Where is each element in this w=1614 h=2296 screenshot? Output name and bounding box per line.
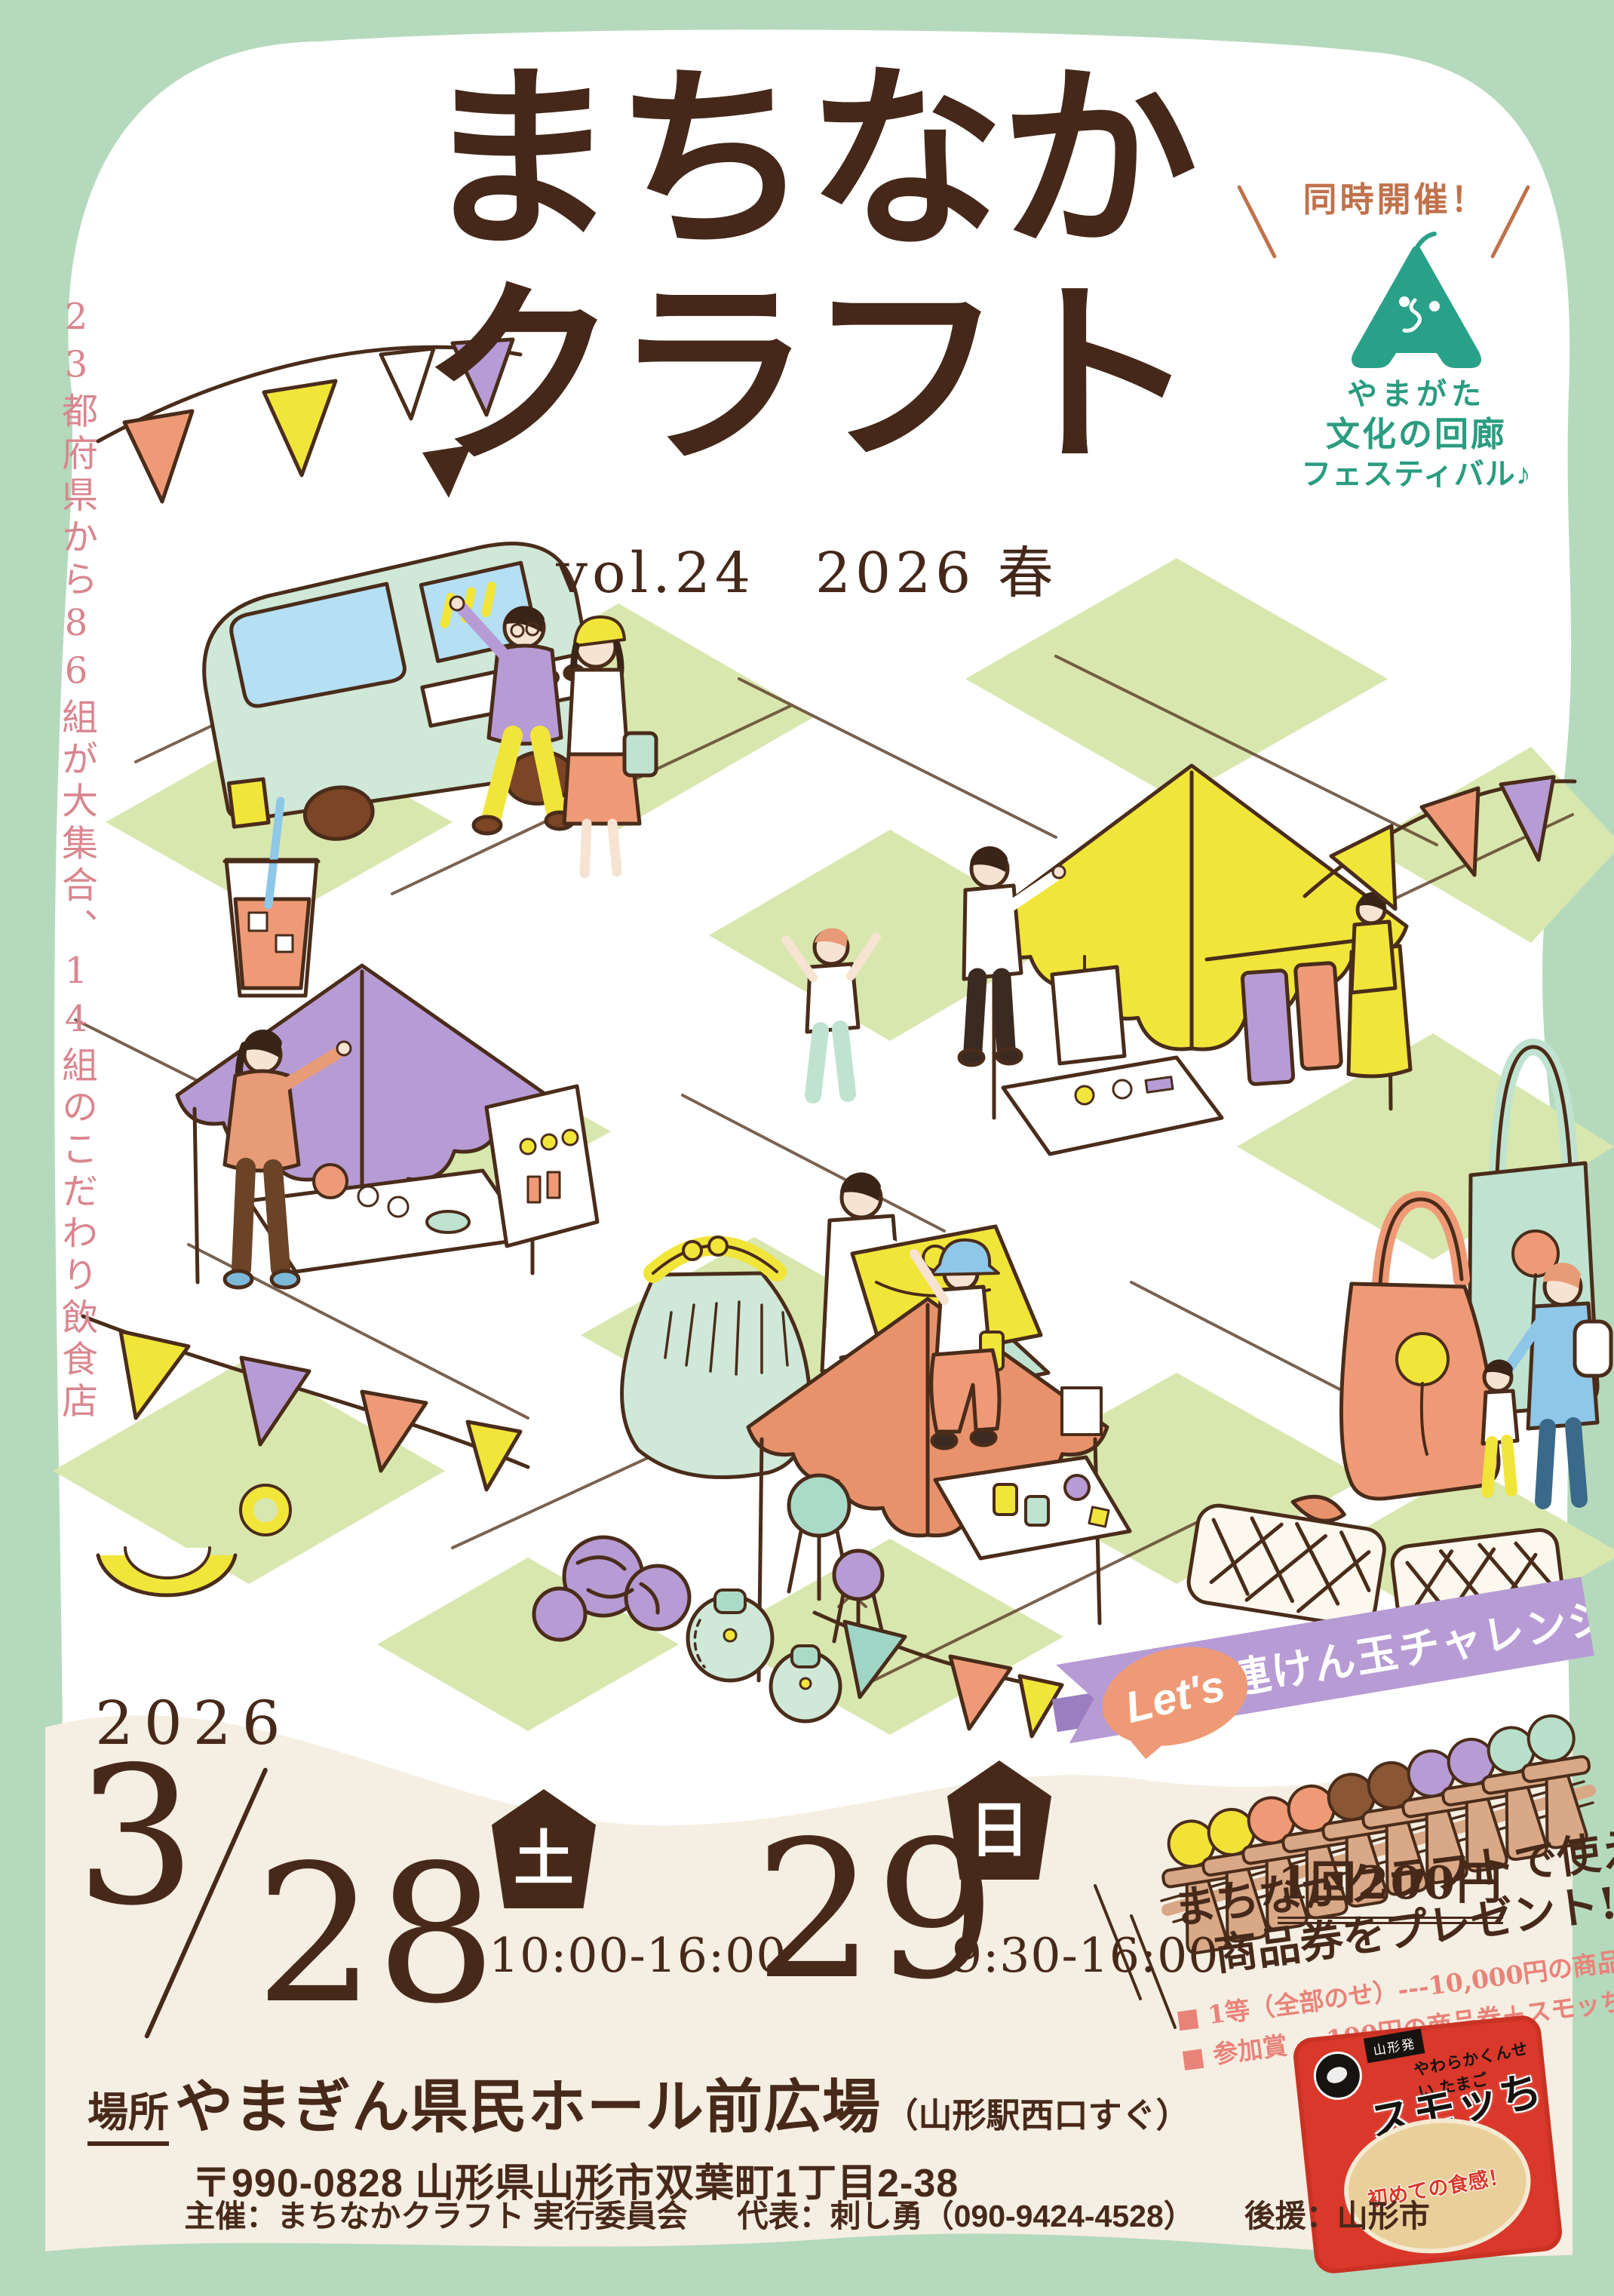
event-time-1: 10:00-16:00 <box>489 1928 787 1983</box>
venue-line: やまぎん県民ホール前広場 （山形駅西口すぐ） <box>175 2061 1189 2144</box>
product-logo-icon <box>1312 2049 1364 2102</box>
footer-representative: 代表：刺し勇（090-9424-4528） <box>738 2190 1195 2236</box>
title-line-1: まちなか <box>0 53 1614 269</box>
lets-text: Let's <box>1120 1659 1229 1733</box>
smocchi-product-photo: 山形発 やわらかくんせい たまご スモッち 初めての食感！ <box>1291 2014 1563 2276</box>
poster-subtitle: vol.24 2026 春 <box>0 528 1614 609</box>
footer-credits: 主催：まちなかクラフト 実行委員会 代表：刺し勇（090-9424-4528） … <box>128 2190 1486 2236</box>
org-line-1: やまがた <box>1266 376 1567 413</box>
event-poster: まちなか クラフト vol.24 2026 春 同時開催！ やまがた 文化の回廊… <box>0 0 1614 2296</box>
weekday-2: 日 <box>969 1782 1029 1869</box>
venue-note: （山形駅西口すぐ） <box>884 2096 1189 2135</box>
footer-support: 後援：山形市 <box>1244 2190 1430 2236</box>
venue-name: やまぎん県民ホール前広場 <box>175 2075 881 2140</box>
event-day-1: 28 <box>255 1840 497 2030</box>
product-egg-image: 初めての食感！ <box>1337 2109 1537 2262</box>
event-month: 3 <box>75 1742 196 1932</box>
side-tagline: 23都府県から86組が大集合、14組のこだわり飲食店 <box>50 296 103 1472</box>
venue-label: 場所 <box>87 2079 169 2146</box>
org-line-3: フェスティバル♪ <box>1266 456 1567 493</box>
co-event-label: 同時開催！ <box>1282 172 1508 221</box>
footer-organizer: 主催：まちなかクラフト 実行委員会 <box>184 2190 687 2236</box>
weekday-1: 土 <box>514 1810 574 1898</box>
org-line-2: 文化の回廊 <box>1266 413 1567 456</box>
co-event-organization: やまがた 文化の回廊 フェスティバル♪ <box>1266 376 1567 493</box>
